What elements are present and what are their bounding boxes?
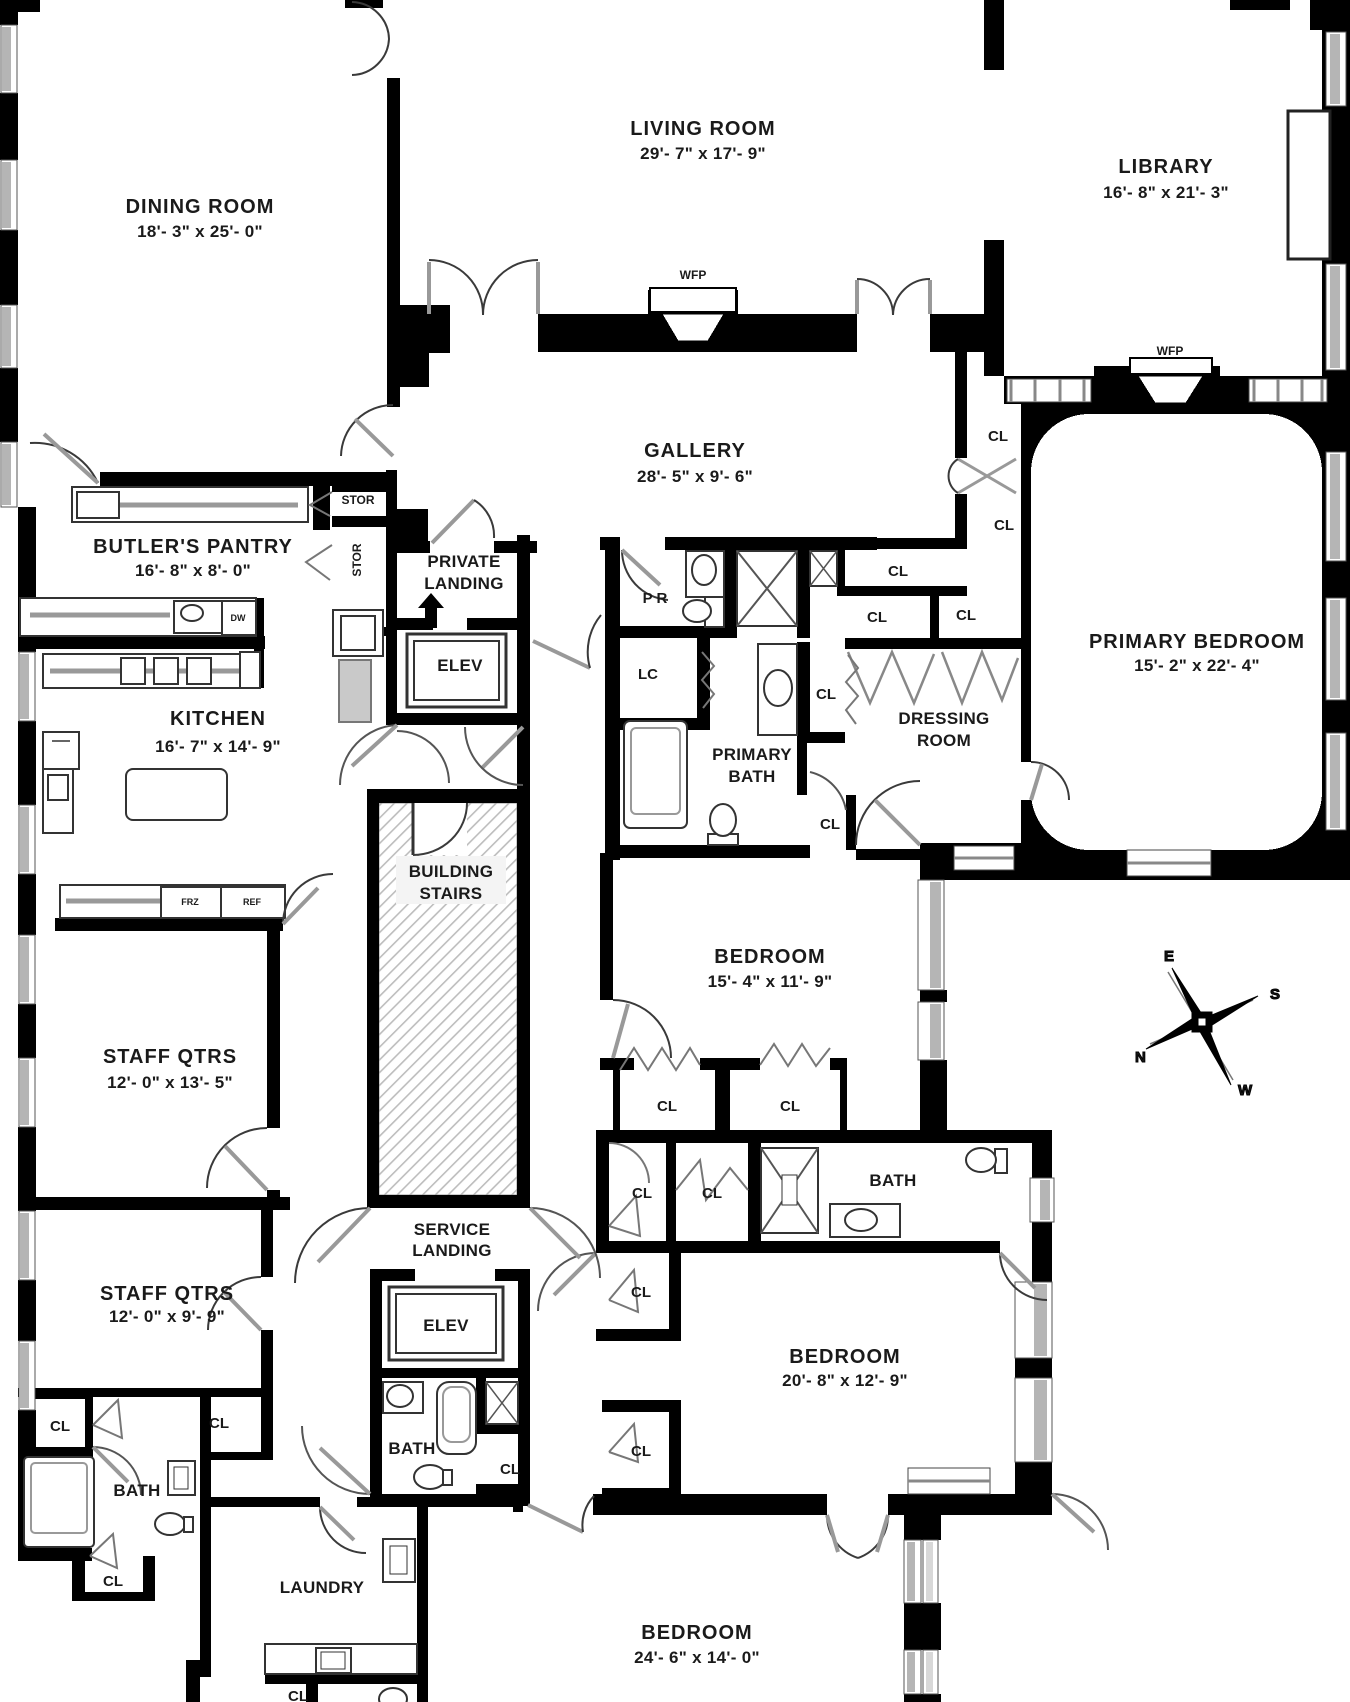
svg-text:CL: CL bbox=[820, 816, 840, 833]
svg-text:ELEV: ELEV bbox=[437, 656, 483, 675]
svg-text:CL: CL bbox=[988, 428, 1008, 445]
svg-text:CL: CL bbox=[780, 1098, 800, 1115]
svg-text:CL: CL bbox=[888, 563, 908, 580]
svg-text:24'- 6" x 14'- 0": 24'- 6" x 14'- 0" bbox=[634, 1648, 760, 1667]
svg-text:LIVING ROOM: LIVING ROOM bbox=[630, 118, 775, 140]
svg-text:WFP: WFP bbox=[1157, 344, 1184, 358]
svg-text:LAUNDRY: LAUNDRY bbox=[280, 1578, 365, 1597]
svg-text:CL: CL bbox=[994, 517, 1014, 534]
svg-text:REF: REF bbox=[243, 897, 262, 907]
svg-text:N: N bbox=[1135, 1049, 1146, 1066]
svg-text:STAIRS: STAIRS bbox=[420, 884, 483, 903]
svg-text:CL: CL bbox=[631, 1284, 651, 1301]
svg-text:CL: CL bbox=[103, 1573, 123, 1590]
svg-text:P R: P R bbox=[643, 590, 668, 607]
svg-text:STOR: STOR bbox=[341, 493, 374, 507]
svg-text:CL: CL bbox=[816, 686, 836, 703]
svg-text:CL: CL bbox=[867, 609, 887, 626]
svg-text:29'- 7" x 17'- 9": 29'- 7" x 17'- 9" bbox=[640, 144, 766, 163]
svg-text:BATH: BATH bbox=[869, 1171, 916, 1190]
svg-text:E: E bbox=[1164, 948, 1174, 965]
svg-text:BEDROOM: BEDROOM bbox=[641, 1622, 752, 1644]
svg-text:CL: CL bbox=[657, 1098, 677, 1115]
svg-text:15'- 2" x 22'- 4": 15'- 2" x 22'- 4" bbox=[1134, 656, 1260, 675]
svg-text:PRIVATE: PRIVATE bbox=[427, 552, 500, 571]
svg-text:12'- 0" x 13'- 5": 12'- 0" x 13'- 5" bbox=[107, 1073, 233, 1092]
svg-text:STAFF QTRS: STAFF QTRS bbox=[103, 1046, 237, 1068]
svg-text:BEDROOM: BEDROOM bbox=[714, 946, 825, 968]
svg-text:BEDROOM: BEDROOM bbox=[789, 1346, 900, 1368]
svg-text:16'- 7" x 14'- 9": 16'- 7" x 14'- 9" bbox=[155, 737, 281, 756]
svg-text:DRESSING: DRESSING bbox=[898, 709, 989, 728]
svg-text:LC: LC bbox=[638, 666, 658, 683]
svg-text:CL: CL bbox=[288, 1688, 308, 1702]
svg-text:PRIMARY: PRIMARY bbox=[712, 745, 792, 764]
svg-text:28'- 5" x 9'- 6": 28'- 5" x 9'- 6" bbox=[637, 467, 753, 486]
svg-text:CL: CL bbox=[632, 1185, 652, 1202]
svg-text:LANDING: LANDING bbox=[424, 574, 504, 593]
svg-text:LANDING: LANDING bbox=[412, 1241, 492, 1260]
svg-text:BUILDING: BUILDING bbox=[409, 862, 494, 881]
svg-text:PRIMARY BEDROOM: PRIMARY BEDROOM bbox=[1089, 631, 1305, 653]
svg-text:CL: CL bbox=[631, 1443, 651, 1460]
svg-text:16'- 8" x 8'- 0": 16'- 8" x 8'- 0" bbox=[135, 561, 251, 580]
svg-text:CL: CL bbox=[50, 1418, 70, 1435]
svg-text:CL: CL bbox=[500, 1461, 520, 1478]
svg-text:BUTLER'S PANTRY: BUTLER'S PANTRY bbox=[93, 536, 293, 558]
svg-text:KITCHEN: KITCHEN bbox=[170, 708, 266, 730]
svg-text:CL: CL bbox=[956, 607, 976, 624]
svg-text:DINING ROOM: DINING ROOM bbox=[126, 196, 275, 218]
svg-text:16'- 8" x 21'- 3": 16'- 8" x 21'- 3" bbox=[1103, 183, 1229, 202]
svg-text:CL: CL bbox=[209, 1415, 229, 1432]
svg-text:20'- 8" x 12'- 9": 20'- 8" x 12'- 9" bbox=[782, 1371, 908, 1390]
svg-text:STAFF QTRS: STAFF QTRS bbox=[100, 1283, 234, 1305]
svg-text:SERVICE: SERVICE bbox=[414, 1220, 490, 1239]
svg-text:S: S bbox=[1270, 986, 1280, 1003]
svg-text:STOR: STOR bbox=[350, 543, 364, 576]
svg-text:DW: DW bbox=[231, 613, 246, 623]
svg-text:BATH: BATH bbox=[113, 1481, 160, 1500]
svg-text:ELEV: ELEV bbox=[423, 1316, 469, 1335]
svg-text:BATH: BATH bbox=[728, 767, 775, 786]
svg-text:LIBRARY: LIBRARY bbox=[1118, 156, 1213, 178]
svg-text:W: W bbox=[1238, 1082, 1253, 1099]
svg-text:15'- 4" x 11'- 9": 15'- 4" x 11'- 9" bbox=[708, 972, 833, 991]
svg-text:18'- 3" x 25'- 0": 18'- 3" x 25'- 0" bbox=[137, 222, 263, 241]
svg-text:GALLERY: GALLERY bbox=[644, 440, 746, 462]
svg-text:12'- 0" x 9'- 9": 12'- 0" x 9'- 9" bbox=[109, 1307, 225, 1326]
svg-text:WFP: WFP bbox=[680, 268, 707, 282]
svg-text:CL: CL bbox=[702, 1185, 722, 1202]
svg-text:FRZ: FRZ bbox=[181, 897, 199, 907]
svg-text:BATH: BATH bbox=[388, 1439, 435, 1458]
svg-text:ROOM: ROOM bbox=[917, 731, 971, 750]
